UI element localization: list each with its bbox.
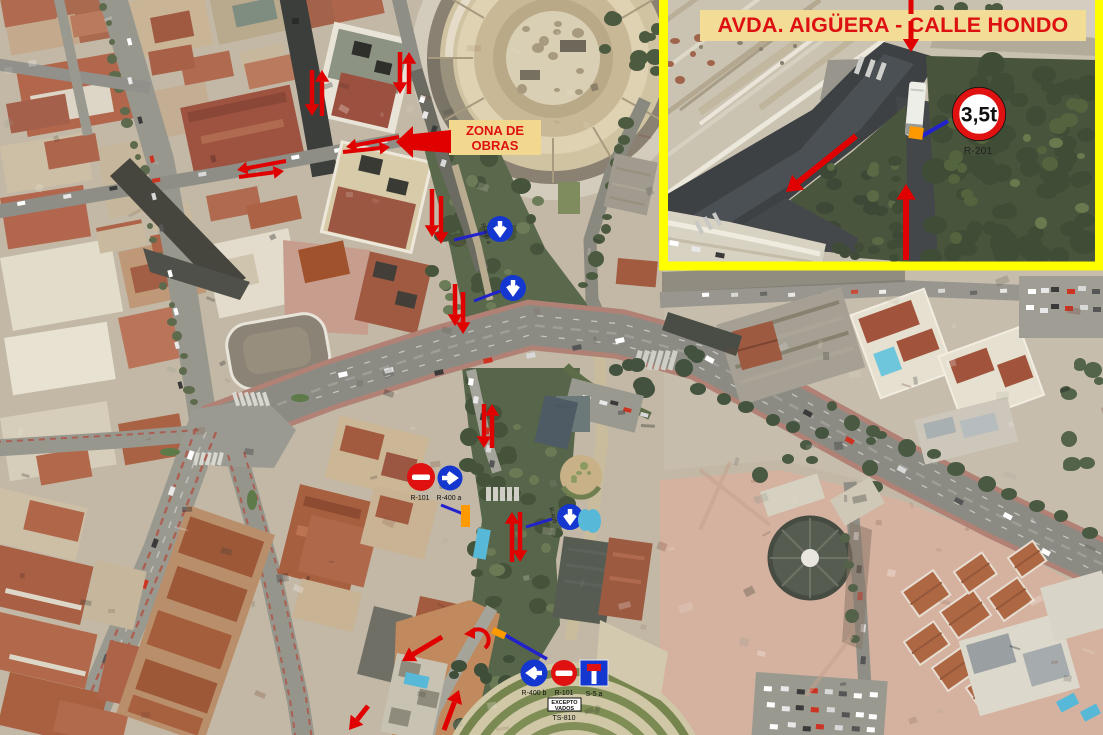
svg-text:ZONA DE: ZONA DE xyxy=(466,123,524,138)
svg-text:S-5 a: S-5 a xyxy=(586,691,603,698)
svg-text:TS-810: TS-810 xyxy=(553,715,576,722)
svg-text:R-201: R-201 xyxy=(964,145,993,157)
svg-text:AVDA. AIGÜERA - CALLE HONDO: AVDA. AIGÜERA - CALLE HONDO xyxy=(718,12,1069,37)
svg-text:R-400 b: R-400 b xyxy=(522,690,547,697)
svg-text:R-101: R-101 xyxy=(410,495,429,502)
svg-text:VADOS: VADOS xyxy=(555,706,574,712)
svg-text:R-101: R-101 xyxy=(554,690,573,697)
svg-text:OBRAS: OBRAS xyxy=(472,138,519,153)
svg-text:R-400 a: R-400 a xyxy=(437,495,462,502)
svg-text:3,5t: 3,5t xyxy=(961,104,997,127)
